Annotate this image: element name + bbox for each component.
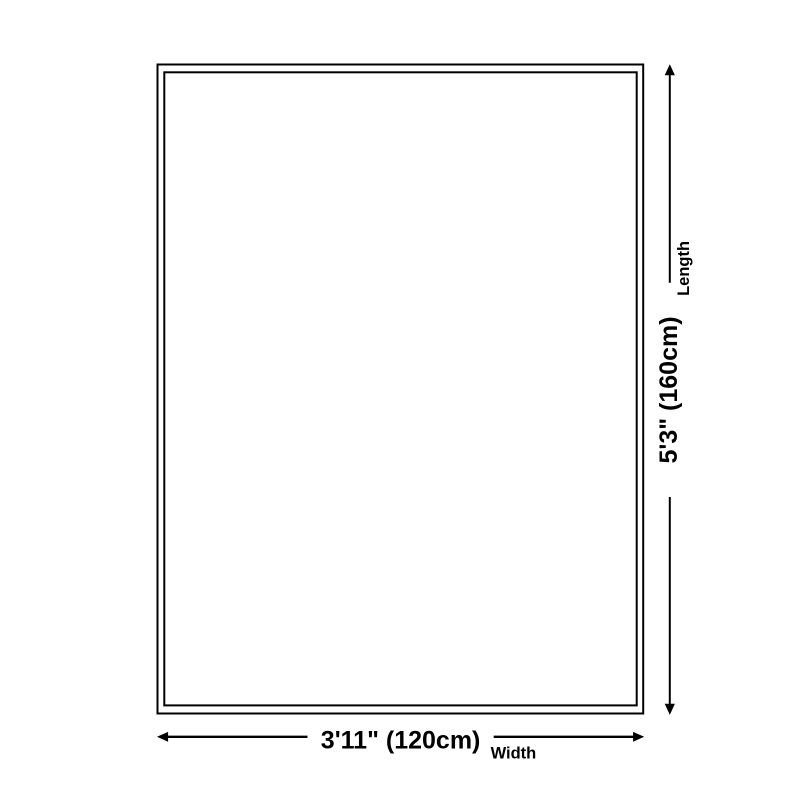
svg-text:5'3" (160cm): 5'3" (160cm) xyxy=(655,316,683,463)
svg-text:3'11" (120cm): 3'11" (120cm) xyxy=(321,726,481,754)
svg-text:Length: Length xyxy=(675,241,693,296)
svg-text:Width: Width xyxy=(491,745,537,763)
